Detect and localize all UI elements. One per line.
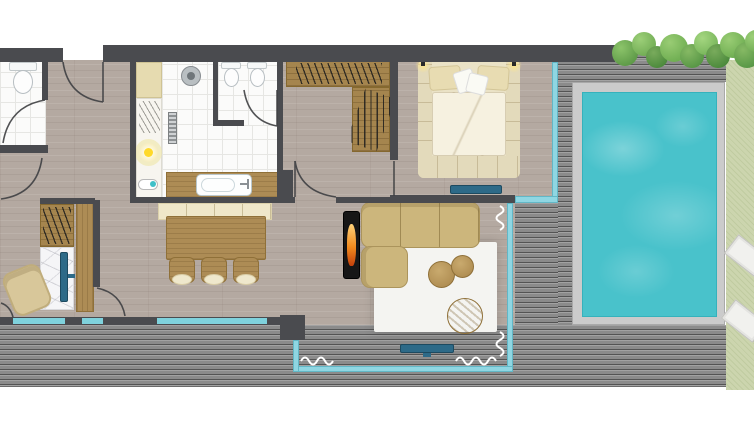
wc-door-arc: [3, 100, 45, 143]
door-swing-overlay: [0, 0, 754, 435]
terrace-door-arc: [1, 303, 13, 317]
curtain-squiggle: [497, 332, 504, 356]
hall-door-arc: [1, 158, 42, 199]
study-door-arc: [97, 288, 125, 316]
curtain-squiggle: [497, 206, 504, 230]
curtain-squiggle: [301, 358, 333, 365]
guest-wc-door-arc: [244, 90, 277, 126]
floor-plan-canvas: [0, 0, 754, 435]
curtain-squiggle: [456, 358, 496, 365]
corridor-door-arc: [295, 161, 336, 197]
entry-door-arc: [63, 62, 103, 102]
